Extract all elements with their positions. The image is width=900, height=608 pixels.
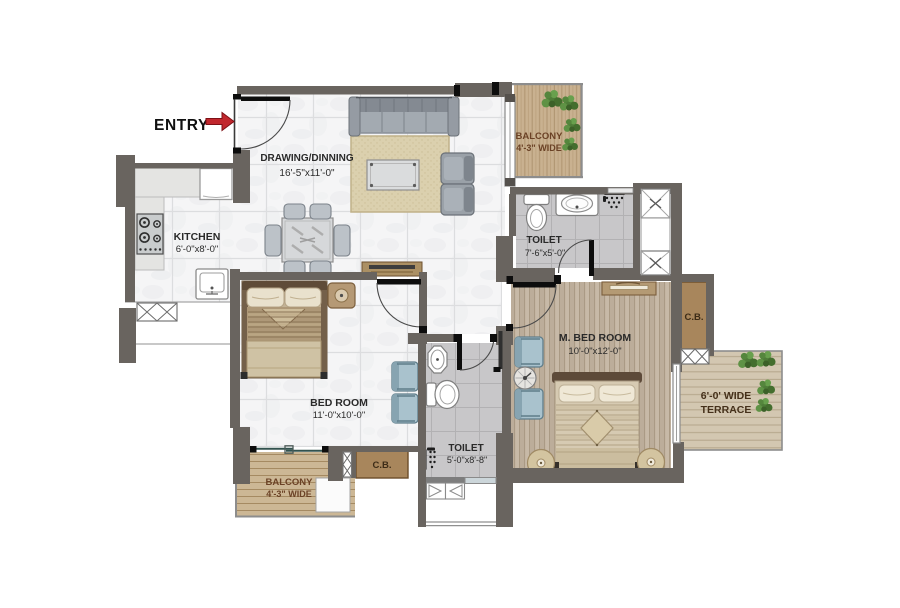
svg-text:M. BED ROOM: M. BED ROOM <box>559 332 632 344</box>
svg-text:11'-0"x10'-0": 11'-0"x10'-0" <box>313 410 365 421</box>
svg-text:ENTRY: ENTRY <box>154 117 209 134</box>
svg-text:10'-0"x12'-0": 10'-0"x12'-0" <box>568 346 621 357</box>
svg-text:KITCHEN: KITCHEN <box>174 231 221 243</box>
svg-text:TERRACE: TERRACE <box>701 404 752 416</box>
svg-text:TOILET: TOILET <box>526 235 561 246</box>
svg-text:6'-0"x8'-0": 6'-0"x8'-0" <box>176 244 219 255</box>
svg-text:C.B.: C.B. <box>685 312 704 323</box>
svg-text:C.B.: C.B. <box>373 460 392 471</box>
svg-text:7'-6"x5'-0": 7'-6"x5'-0" <box>525 248 565 258</box>
svg-text:6'-0' WIDE: 6'-0' WIDE <box>701 390 752 402</box>
svg-text:TOILET: TOILET <box>448 443 483 454</box>
svg-text:BALCONY: BALCONY <box>266 477 314 488</box>
svg-text:4'-3" WIDE: 4'-3" WIDE <box>516 143 561 153</box>
svg-text:16'-5"x11'-0": 16'-5"x11'-0" <box>279 168 335 179</box>
svg-text:BALCONY: BALCONY <box>516 131 564 142</box>
svg-text:DRAWING/DINNING: DRAWING/DINNING <box>260 153 354 164</box>
svg-text:4'-3" WIDE: 4'-3" WIDE <box>266 489 311 499</box>
svg-text:BED ROOM: BED ROOM <box>310 397 368 409</box>
svg-text:5'-0"x8'-8": 5'-0"x8'-8" <box>447 455 487 465</box>
